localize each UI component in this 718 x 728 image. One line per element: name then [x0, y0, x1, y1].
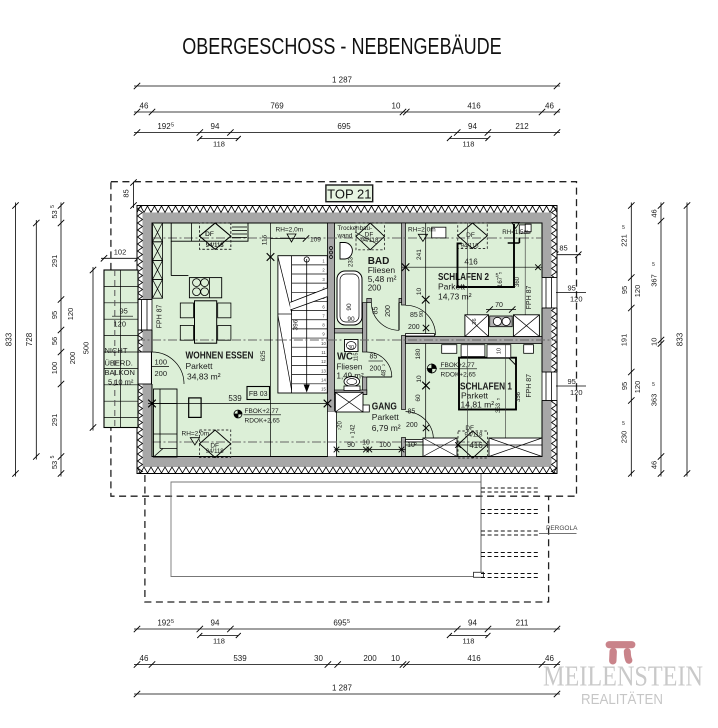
svg-text:ÜBERD.: ÜBERD. — [105, 359, 133, 368]
svg-text:10: 10 — [392, 102, 401, 111]
svg-text:90: 90 — [347, 316, 355, 323]
svg-text:85: 85 — [122, 189, 131, 197]
svg-text:120: 120 — [570, 295, 583, 304]
svg-text:363: 363 — [496, 402, 502, 413]
svg-text:102: 102 — [114, 248, 127, 257]
svg-text:200: 200 — [408, 324, 420, 331]
svg-text:5: 5 — [622, 421, 625, 427]
svg-text:539: 539 — [228, 394, 242, 403]
svg-text:167: 167 — [498, 276, 504, 287]
svg-text:FPH 87: FPH 87 — [157, 305, 164, 329]
svg-text:Fliesen: Fliesen — [337, 363, 363, 372]
svg-text:363: 363 — [650, 394, 659, 407]
svg-text:94: 94 — [468, 619, 477, 628]
svg-text:Trockenbau-: Trockenbau- — [338, 225, 373, 232]
svg-text:RDOK+2,65: RDOK+2,65 — [441, 372, 477, 379]
svg-text:RH=2,0m: RH=2,0m — [182, 431, 210, 438]
svg-text:94: 94 — [211, 122, 220, 131]
svg-text:WC: WC — [337, 352, 353, 363]
svg-text:94/118: 94/118 — [206, 243, 225, 249]
svg-text:212: 212 — [515, 122, 529, 131]
svg-text:94: 94 — [468, 122, 477, 131]
svg-text:14: 14 — [321, 377, 326, 382]
svg-text:14,81 m²: 14,81 m² — [461, 400, 495, 410]
svg-text:118: 118 — [213, 140, 225, 149]
svg-text:94/118: 94/118 — [461, 243, 480, 249]
svg-text:30: 30 — [314, 654, 323, 663]
svg-text:200: 200 — [155, 369, 168, 378]
svg-text:5: 5 — [50, 205, 56, 208]
svg-text:120: 120 — [66, 308, 75, 321]
svg-text:5: 5 — [652, 382, 655, 388]
svg-text:416: 416 — [467, 102, 481, 111]
svg-text:34,83 m²: 34,83 m² — [187, 372, 221, 382]
svg-text:120: 120 — [633, 285, 642, 298]
svg-text:230: 230 — [620, 431, 629, 444]
svg-text:200: 200 — [363, 654, 377, 663]
svg-text:FPH 87: FPH 87 — [526, 286, 533, 310]
svg-text:5: 5 — [50, 455, 56, 458]
svg-text:PERGOLA: PERGOLA — [546, 525, 578, 532]
svg-text:10: 10 — [650, 338, 659, 346]
svg-text:Parkett: Parkett — [186, 361, 214, 371]
svg-text:85: 85 — [408, 409, 416, 416]
svg-text:REALITÄTEN: REALITÄTEN — [581, 691, 663, 708]
svg-text:94/118: 94/118 — [360, 238, 379, 244]
svg-text:NICHT: NICHT — [105, 346, 128, 355]
svg-text:53: 53 — [50, 210, 59, 218]
svg-text:5: 5 — [171, 123, 174, 129]
svg-text:48: 48 — [382, 369, 388, 376]
svg-text:15: 15 — [321, 387, 326, 392]
svg-text:90: 90 — [346, 303, 353, 311]
svg-text:396: 396 — [293, 319, 300, 330]
svg-text:wand: wand — [337, 233, 353, 240]
svg-text:118: 118 — [463, 637, 475, 646]
svg-text:10: 10 — [321, 341, 326, 346]
svg-text:118: 118 — [463, 140, 475, 149]
svg-text:116: 116 — [262, 234, 269, 245]
svg-text:OBERGESCHOSS - NEBENGEBÄUDE: OBERGESCHOSS - NEBENGEBÄUDE — [182, 33, 502, 59]
svg-text:360: 360 — [515, 276, 521, 287]
svg-text:94: 94 — [211, 619, 220, 628]
svg-text:100: 100 — [50, 362, 59, 375]
svg-text:FB 03: FB 03 — [249, 391, 268, 398]
svg-text:85: 85 — [410, 312, 418, 319]
svg-text:192: 192 — [157, 619, 171, 628]
svg-text:10: 10 — [416, 375, 423, 383]
svg-text:539: 539 — [233, 654, 247, 663]
svg-text:10: 10 — [497, 348, 503, 354]
svg-text:Parkett: Parkett — [372, 412, 400, 422]
svg-text:291: 291 — [50, 414, 59, 427]
svg-text:FPH 87: FPH 87 — [526, 374, 533, 398]
svg-text:95: 95 — [620, 382, 629, 390]
svg-text:1 287: 1 287 — [332, 684, 353, 693]
svg-text:356: 356 — [516, 391, 522, 402]
svg-text:46: 46 — [140, 102, 149, 111]
svg-text:13: 13 — [321, 368, 326, 373]
svg-text:191: 191 — [620, 334, 629, 347]
svg-text:12: 12 — [321, 359, 326, 364]
svg-text:GANG: GANG — [372, 402, 397, 413]
svg-text:115: 115 — [354, 353, 360, 362]
svg-text:94/118: 94/118 — [206, 449, 225, 455]
svg-text:5: 5 — [622, 225, 625, 231]
svg-text:100: 100 — [155, 358, 168, 367]
svg-text:56: 56 — [50, 337, 59, 345]
svg-text:DF: DF — [465, 425, 474, 432]
svg-text:221: 221 — [620, 234, 629, 247]
svg-text:FBOK+2,77: FBOK+2,77 — [441, 362, 476, 369]
svg-text:6,79 m²: 6,79 m² — [372, 423, 401, 433]
svg-text:20: 20 — [338, 421, 344, 428]
svg-text:95: 95 — [568, 377, 576, 386]
svg-text:10: 10 — [416, 288, 423, 296]
svg-text:95: 95 — [120, 307, 128, 316]
svg-text:10: 10 — [362, 440, 370, 447]
svg-text:11: 11 — [321, 350, 326, 355]
svg-text:14,73 m²: 14,73 m² — [438, 292, 472, 302]
svg-text:5: 5 — [171, 619, 174, 625]
svg-text:46: 46 — [650, 209, 659, 217]
svg-text:95: 95 — [568, 284, 576, 293]
svg-text:120: 120 — [570, 388, 583, 397]
svg-text:1 287: 1 287 — [332, 76, 353, 85]
svg-text:241: 241 — [416, 249, 423, 260]
svg-text:5: 5 — [347, 619, 350, 625]
svg-text:RDOK+2,65: RDOK+2,65 — [245, 418, 281, 425]
svg-text:416: 416 — [464, 258, 478, 267]
svg-text:625: 625 — [260, 350, 267, 361]
svg-text:30: 30 — [348, 345, 354, 351]
svg-text:367: 367 — [650, 274, 659, 287]
svg-text:WOHNEN ESSEN: WOHNEN ESSEN — [186, 351, 254, 362]
svg-text:180: 180 — [415, 348, 422, 359]
svg-text:RH=1,5m: RH=1,5m — [502, 229, 528, 236]
svg-text:46: 46 — [140, 654, 149, 663]
svg-text:500: 500 — [82, 342, 91, 355]
svg-text:142: 142 — [351, 424, 357, 435]
svg-text:RH=2,0m: RH=2,0m — [408, 227, 436, 234]
svg-text:291: 291 — [50, 255, 59, 268]
svg-text:MEILENSTEIN: MEILENSTEIN — [543, 661, 703, 693]
svg-text:695: 695 — [333, 619, 347, 628]
svg-text:233: 233 — [349, 256, 355, 267]
svg-text:200: 200 — [385, 305, 392, 317]
svg-text:833: 833 — [676, 332, 685, 346]
svg-text:200: 200 — [368, 284, 382, 293]
svg-text:5: 5 — [652, 262, 655, 268]
svg-text:60: 60 — [415, 394, 422, 402]
svg-text:109: 109 — [310, 237, 321, 244]
svg-text:416: 416 — [467, 654, 481, 663]
svg-text:95: 95 — [50, 311, 59, 319]
svg-text:120: 120 — [633, 381, 642, 394]
svg-text:5,48 m²: 5,48 m² — [368, 274, 397, 284]
svg-text:211: 211 — [516, 619, 529, 628]
svg-text:833: 833 — [5, 332, 14, 346]
svg-text:100: 100 — [379, 442, 391, 449]
svg-text:70: 70 — [495, 302, 503, 309]
svg-text:FBOK+2,77: FBOK+2,77 — [245, 408, 280, 415]
svg-text:769: 769 — [270, 102, 284, 111]
svg-text:46: 46 — [545, 102, 554, 111]
svg-text:10: 10 — [391, 654, 400, 663]
svg-text:90: 90 — [347, 442, 355, 449]
svg-text:416: 416 — [469, 441, 483, 450]
svg-text:85: 85 — [370, 354, 378, 361]
svg-text:53: 53 — [50, 461, 59, 469]
svg-text:118: 118 — [213, 637, 225, 646]
svg-text:DF: DF — [205, 231, 214, 238]
svg-text:RH=2,0m: RH=2,0m — [276, 227, 304, 234]
svg-text:200: 200 — [370, 366, 382, 373]
svg-text:5,10 m²: 5,10 m² — [108, 378, 134, 387]
svg-text:728: 728 — [25, 332, 34, 346]
svg-text:BALKON: BALKON — [105, 368, 135, 377]
svg-text:TOP 21: TOP 21 — [327, 186, 371, 201]
svg-text:85: 85 — [373, 307, 380, 315]
svg-text:46: 46 — [650, 461, 659, 469]
svg-text:192: 192 — [157, 122, 171, 131]
svg-text:85: 85 — [559, 244, 567, 253]
svg-text:200: 200 — [406, 422, 418, 429]
svg-text:95: 95 — [620, 286, 629, 294]
svg-text:120: 120 — [114, 320, 127, 329]
svg-text:695: 695 — [337, 122, 351, 131]
svg-text:36: 36 — [472, 318, 478, 324]
svg-text:200: 200 — [68, 352, 77, 365]
